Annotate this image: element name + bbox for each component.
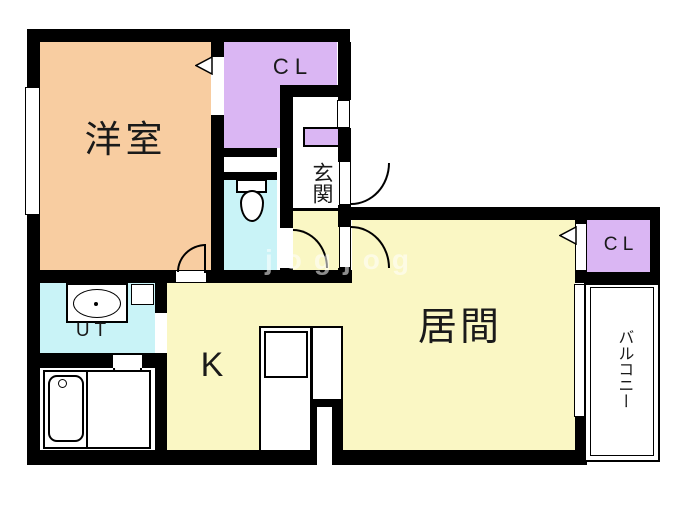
wall-left-lower [27, 215, 40, 465]
front-door-leaf [339, 161, 351, 205]
wall-notch-bottom [317, 407, 332, 465]
closet-right-door-triangle-icon [559, 226, 577, 245]
closet-right-door-gap [576, 224, 586, 270]
label-kitchen: K [184, 346, 240, 386]
bathtub-drain [58, 379, 67, 388]
wall-western-right-lower [211, 115, 224, 270]
floor-plan: 洋室 C L 玄関 U T K 居間 C L バルコニー jogjog [0, 0, 700, 525]
label-entrance: 玄関 [302, 154, 340, 212]
western-door-gap [176, 271, 206, 282]
wall-toilet-top-a [224, 148, 277, 157]
wall-utility-right [155, 270, 167, 450]
utility-door-gap [155, 313, 167, 353]
wall-living-top [338, 207, 660, 220]
label-balcony: バルコニー [607, 303, 639, 435]
wall-left-upper [27, 29, 40, 87]
wall-bottom [27, 450, 587, 465]
wall-western-right-upper [211, 42, 224, 57]
label-living-room: 居間 [378, 304, 542, 352]
label-western-room: 洋室 [40, 110, 211, 170]
bath-door-gap [113, 355, 142, 368]
bath-divider-line [86, 370, 88, 449]
closet-top-door-triangle-icon [195, 56, 213, 75]
kitchen-sink [264, 331, 308, 378]
wall-right-outer-a [338, 42, 351, 100]
utility-door-panel [131, 284, 154, 305]
shoe-cabinet [303, 127, 340, 147]
label-closet-right: C L [587, 231, 650, 259]
watermark-text: jogjog [238, 240, 448, 280]
toilet-sliding-door-gap [224, 157, 277, 172]
label-closet-top: C L [248, 52, 332, 82]
label-utility: U T [60, 318, 122, 344]
window-left [25, 87, 40, 215]
front-door-arc [351, 163, 390, 205]
kitchen-counter-side [311, 326, 343, 401]
wall-top [27, 29, 350, 42]
western-door-leaf [204, 244, 206, 273]
window-entrance-side [337, 100, 350, 128]
wall-below-closet-right [575, 272, 660, 283]
washbasin-drain-dot [94, 302, 98, 306]
